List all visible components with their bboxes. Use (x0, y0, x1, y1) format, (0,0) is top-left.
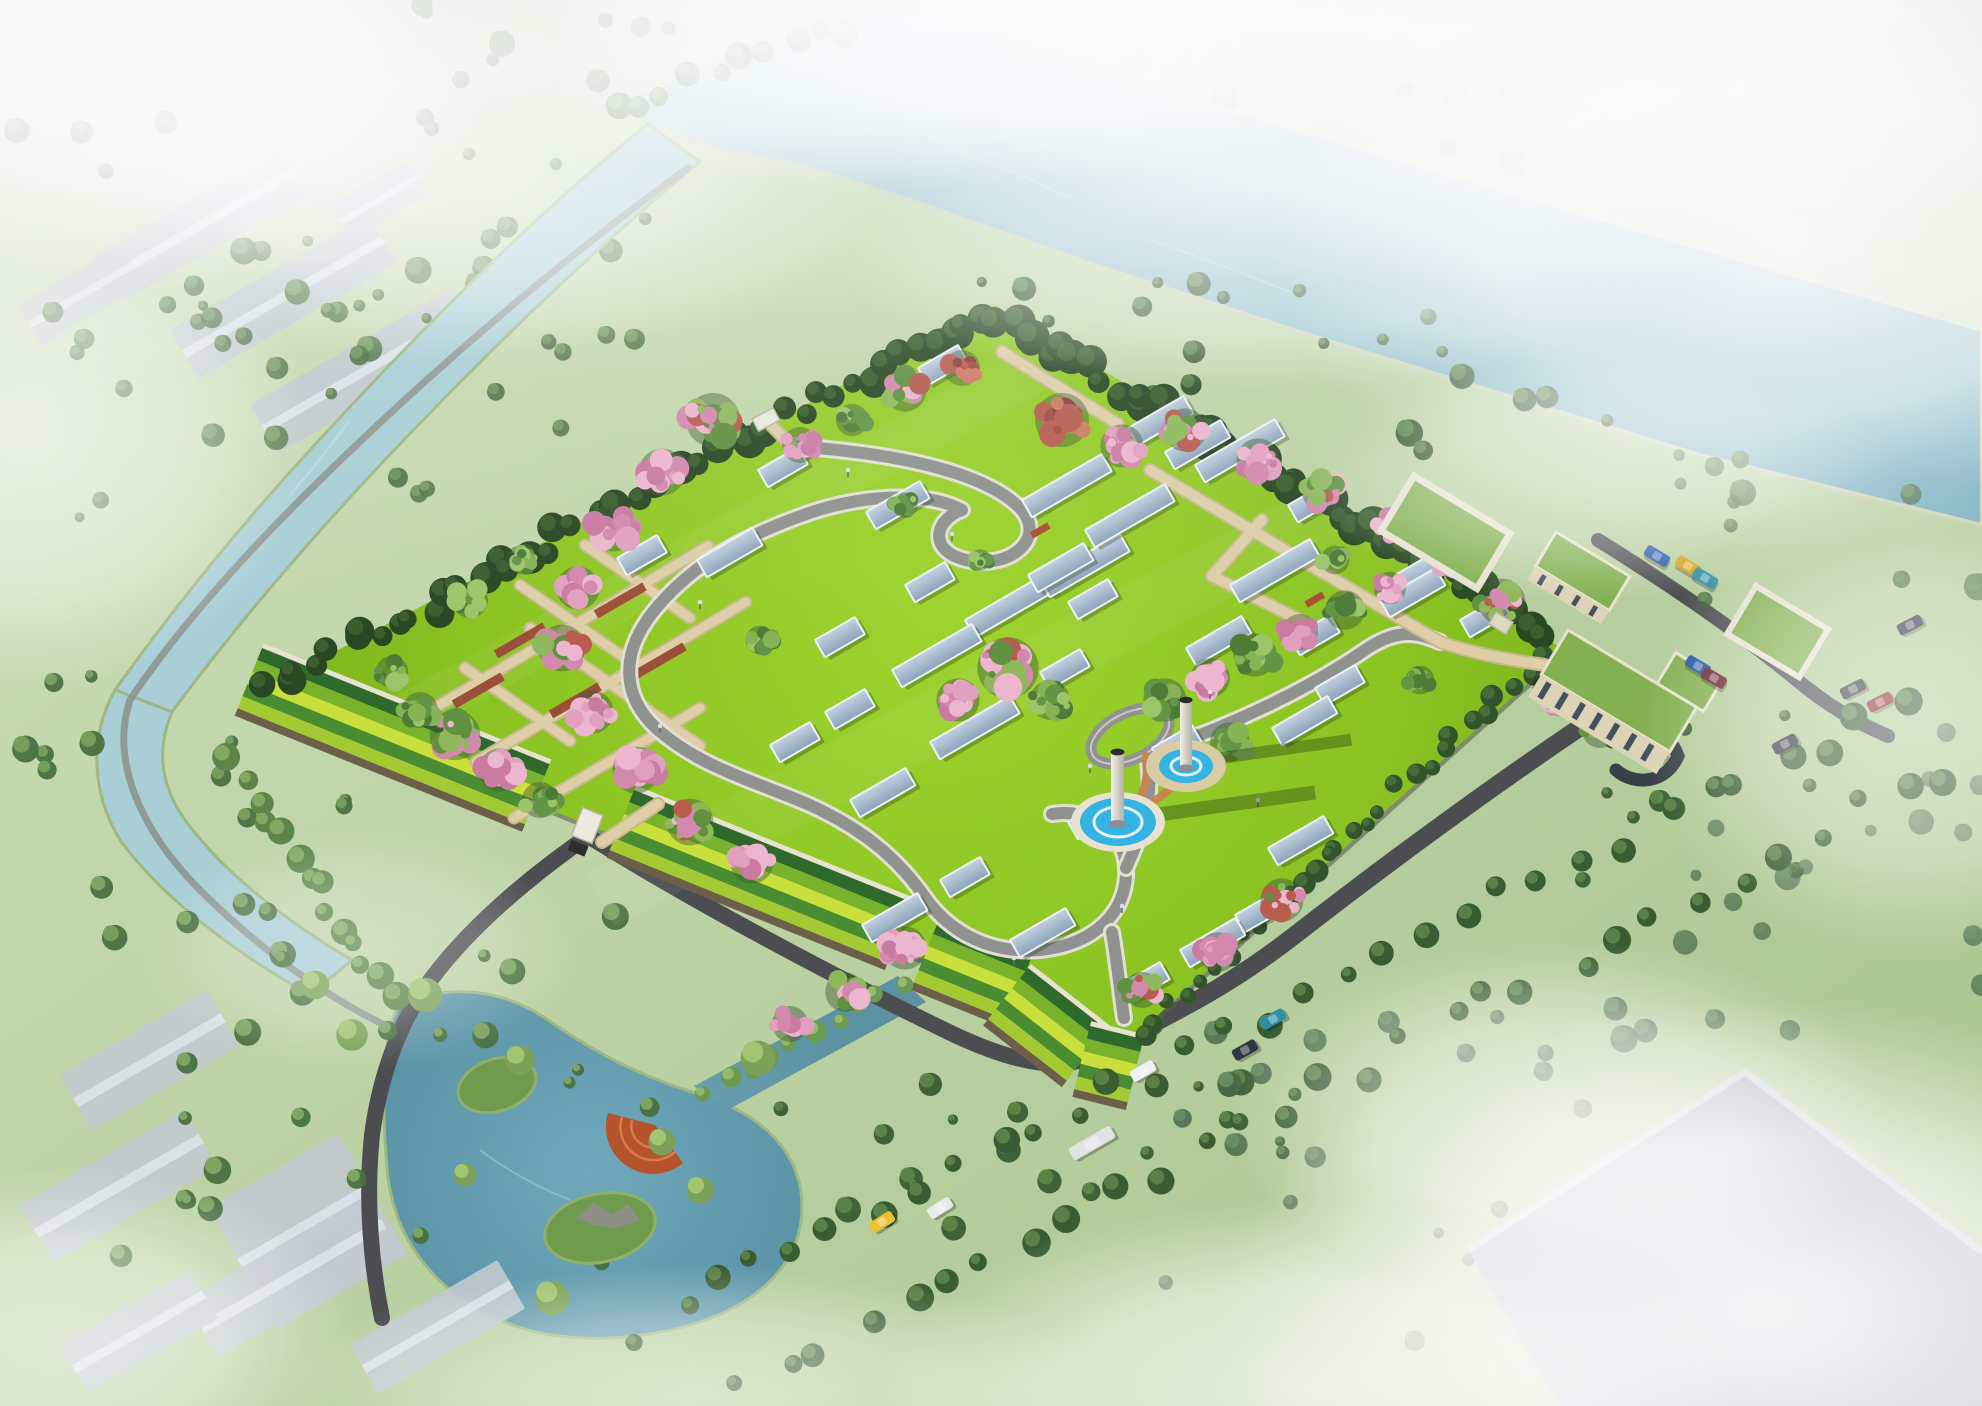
global-haze (0, 0, 1982, 1406)
aerial-site-rendering (0, 0, 1982, 1406)
rendering-canvas (0, 0, 1982, 1406)
